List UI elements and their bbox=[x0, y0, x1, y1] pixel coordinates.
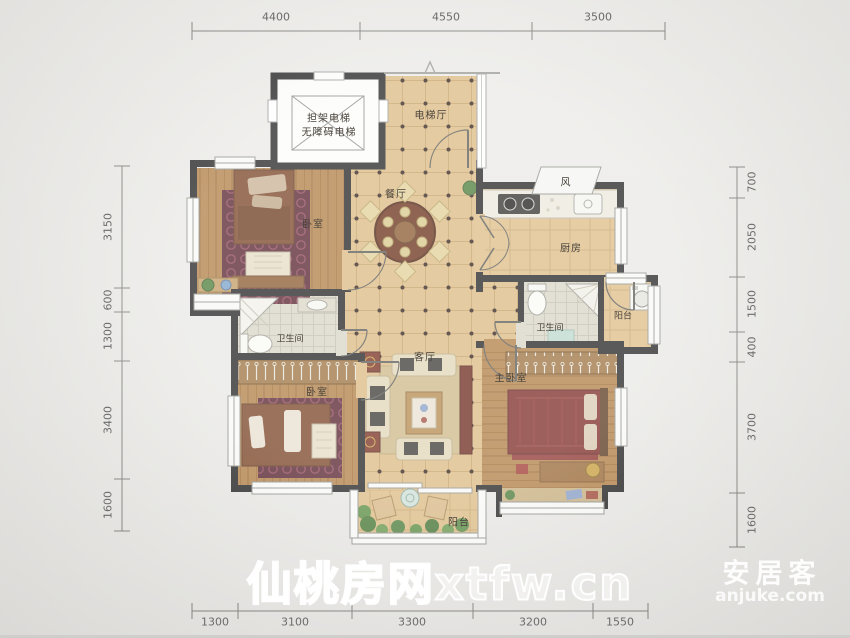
dim-top-1: 4400 bbox=[262, 11, 290, 24]
room-label-living: 客厅 bbox=[414, 349, 436, 364]
floor-plan-graphics bbox=[0, 0, 850, 638]
watermark-brand: 安居客 bbox=[723, 552, 822, 591]
room-label-elevator-line1: 担架电梯 bbox=[307, 110, 351, 125]
room-label-elevator-hall: 电梯厅 bbox=[415, 107, 448, 122]
dim-left-5: 1600 bbox=[102, 491, 115, 519]
room-label-kitchen: 厨房 bbox=[560, 240, 582, 255]
dim-bottom-5: 1550 bbox=[606, 616, 634, 629]
room-label-flue: 风 bbox=[561, 174, 572, 189]
dim-bottom-4: 3200 bbox=[519, 616, 547, 629]
room-label-balcony-bottom: 阳台 bbox=[448, 514, 470, 529]
dim-right-1: 700 bbox=[746, 172, 759, 193]
dim-bottom-3: 3300 bbox=[398, 616, 426, 629]
watermark-brand-domain: anjuke.com bbox=[715, 586, 825, 606]
dim-bottom-2: 3100 bbox=[281, 616, 309, 629]
watermark-site: 仙桃房网xtfw.cn bbox=[247, 548, 634, 613]
dim-right-4: 400 bbox=[746, 337, 759, 358]
furniture-bedroom-bottom bbox=[238, 360, 360, 478]
dim-right-3: 1500 bbox=[746, 290, 759, 318]
dim-top-2: 4550 bbox=[432, 11, 460, 24]
room-label-elevator-line2: 无障碍电梯 bbox=[302, 124, 357, 139]
dim-left-3: 1300 bbox=[102, 322, 115, 350]
dim-left-1: 3150 bbox=[102, 213, 115, 241]
dim-right-6: 1600 bbox=[746, 506, 759, 534]
room-label-balcony-right: 阳台 bbox=[614, 309, 632, 322]
dim-left-4: 3400 bbox=[102, 406, 115, 434]
dim-left-2: 600 bbox=[102, 290, 115, 311]
dim-right-5: 3700 bbox=[746, 413, 759, 441]
furniture-living bbox=[360, 352, 472, 460]
dim-right-2: 2050 bbox=[746, 223, 759, 251]
dim-top-3: 3500 bbox=[584, 11, 612, 24]
floorplan-image: 担架电梯 无障碍电梯 电梯厅 餐厅 卧室 厨房 风 阳台 卫生间 卫生间 卧室 … bbox=[0, 0, 850, 638]
room-label-dining: 餐厅 bbox=[385, 186, 407, 201]
room-label-bedroom-top: 卧室 bbox=[302, 216, 324, 231]
room-label-bedroom-bottom: 卧室 bbox=[306, 384, 328, 399]
room-label-master-bedroom: 主卧室 bbox=[495, 370, 528, 385]
room-label-bath-left: 卫生间 bbox=[276, 332, 303, 345]
hall-boundary bbox=[384, 62, 500, 73]
room-label-bath-right: 卫生间 bbox=[536, 321, 563, 334]
dim-bottom-1: 1300 bbox=[201, 616, 229, 629]
